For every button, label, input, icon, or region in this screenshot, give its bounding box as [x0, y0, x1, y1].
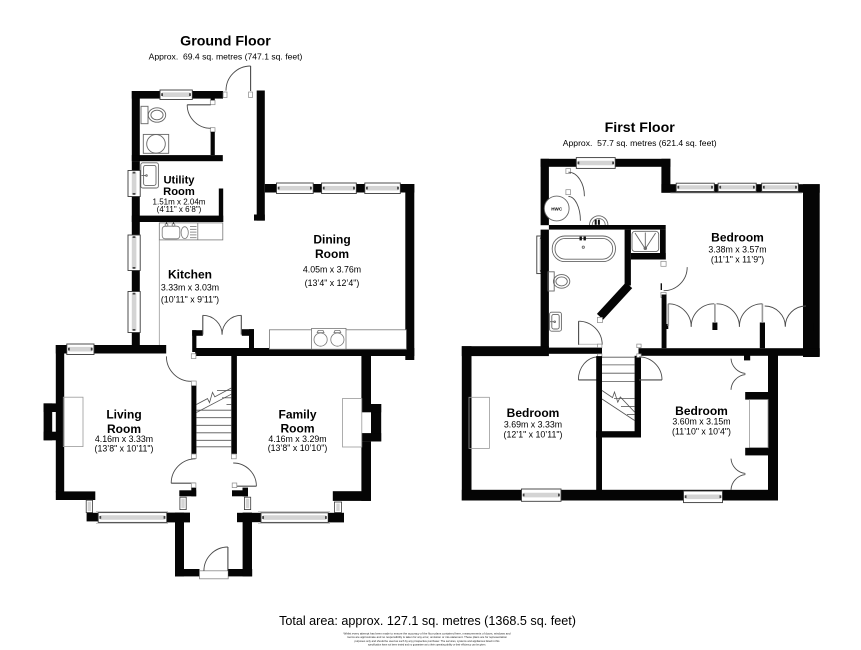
svg-text:Total area: approx. 127.1 sq.: Total area: approx. 127.1 sq. metres (13…: [279, 614, 576, 628]
svg-text:Approx. 69.4 sq. metres (747.: Approx. 69.4 sq. metres (747.1 sq. feet): [149, 51, 303, 61]
svg-text:specification have not been te: specification have not been tested and n…: [368, 642, 486, 646]
svg-text:(11’1" x 11’9"): (11’1" x 11’9"): [711, 254, 764, 264]
svg-text:3.38m x 3.57m: 3.38m x 3.57m: [708, 244, 766, 254]
svg-text:(13’4" x 12’4"): (13’4" x 12’4"): [305, 278, 360, 288]
svg-text:Approx. 57.7 sq. metres (621.: Approx. 57.7 sq. metres (621.4 sq. feet): [563, 138, 717, 148]
svg-text:Bedroom: Bedroom: [711, 230, 764, 244]
svg-text:First Floor: First Floor: [605, 120, 676, 136]
svg-text:4.05m x 3.76m: 4.05m x 3.76m: [303, 265, 361, 275]
svg-text:Ground Floor: Ground Floor: [180, 33, 271, 49]
svg-text:Room: Room: [315, 247, 349, 261]
svg-text:(13’8" x 10’10"): (13’8" x 10’10"): [268, 443, 328, 453]
svg-text:Bedroom: Bedroom: [507, 406, 560, 420]
svg-text:(4’11" x 6’8"): (4’11" x 6’8"): [157, 205, 202, 214]
svg-text:Kitchen: Kitchen: [168, 268, 212, 282]
svg-text:(10’11" x 9’11"): (10’11" x 9’11"): [161, 294, 219, 304]
svg-text:(12’1" x 10’11"): (12’1" x 10’11"): [504, 429, 563, 439]
svg-text:(11’10" x 10’4"): (11’10" x 10’4"): [672, 426, 731, 436]
svg-text:Utility: Utility: [163, 175, 195, 187]
svg-text:(13’8" x 10’11"): (13’8" x 10’11"): [95, 443, 154, 453]
svg-text:Dining: Dining: [313, 233, 350, 247]
svg-text:Room: Room: [163, 186, 195, 198]
svg-text:Living: Living: [106, 408, 141, 422]
svg-text:3.60m x 3.15m: 3.60m x 3.15m: [672, 416, 730, 426]
svg-text:3.33m x 3.03m: 3.33m x 3.03m: [161, 282, 219, 292]
svg-text:3.69m x 3.33m: 3.69m x 3.33m: [504, 419, 562, 429]
svg-text:HWC: HWC: [551, 206, 563, 211]
svg-text:Family: Family: [278, 407, 316, 421]
